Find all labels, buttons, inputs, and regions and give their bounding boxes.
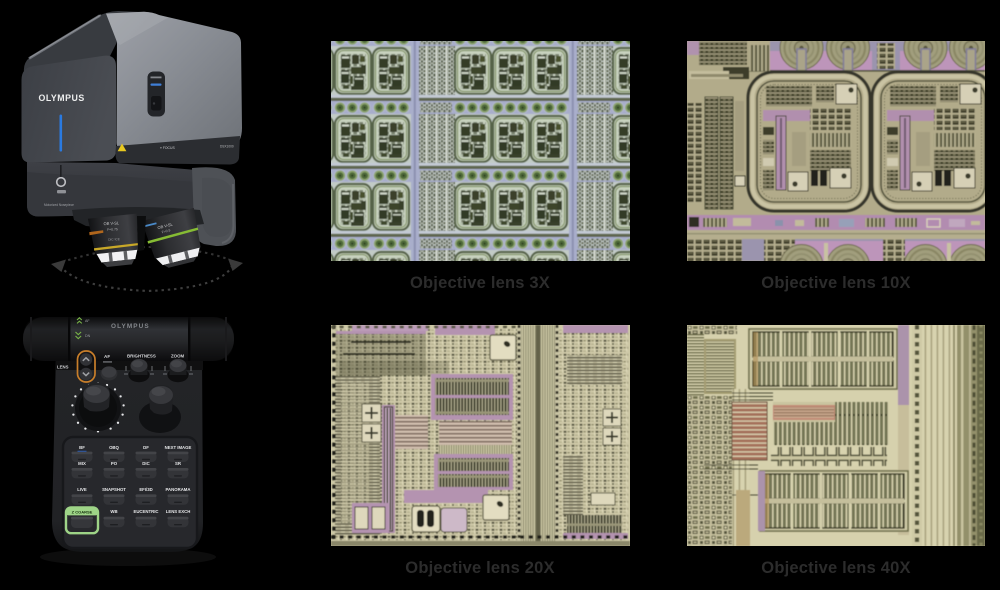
svg-text:DIC ICE: DIC ICE bbox=[108, 237, 120, 242]
svg-text:OBQ: OBQ bbox=[109, 445, 119, 450]
svg-text:EUCENTRIC: EUCENTRIC bbox=[133, 509, 158, 514]
svg-text:⌖ FOCUS: ⌖ FOCUS bbox=[160, 146, 175, 150]
svg-text:LENS EXCH: LENS EXCH bbox=[166, 509, 191, 514]
svg-text:DIC: DIC bbox=[142, 461, 149, 466]
svg-text:DSX1000: DSX1000 bbox=[220, 145, 234, 149]
svg-text:OLYMPUS: OLYMPUS bbox=[39, 93, 85, 103]
svg-text:SR: SR bbox=[175, 461, 182, 466]
svg-text:BF: BF bbox=[79, 445, 85, 450]
svg-text:Z COARSE: Z COARSE bbox=[72, 510, 93, 515]
svg-text:OLYMPUS: OLYMPUS bbox=[111, 323, 150, 330]
svg-text:DN: DN bbox=[85, 334, 91, 338]
svg-text:NEXT IMAGE: NEXT IMAGE bbox=[165, 445, 192, 450]
svg-text:PANORAMA: PANORAMA bbox=[166, 487, 191, 492]
svg-text:Motorized Nosepiece: Motorized Nosepiece bbox=[44, 203, 74, 207]
svg-text:LENS: LENS bbox=[57, 365, 69, 370]
svg-text:WB: WB bbox=[110, 509, 117, 514]
svg-text:OB V-SL: OB V-SL bbox=[103, 220, 120, 226]
svg-text:AF: AF bbox=[85, 319, 90, 323]
svg-text:LIVE: LIVE bbox=[77, 487, 87, 492]
svg-text:ZOOM: ZOOM bbox=[171, 354, 185, 359]
svg-text:MIX: MIX bbox=[78, 461, 86, 466]
svg-text:AF: AF bbox=[104, 354, 110, 359]
svg-text:PO: PO bbox=[111, 461, 118, 466]
svg-text:F=0.75: F=0.75 bbox=[107, 227, 118, 232]
svg-text:EFI/3D: EFI/3D bbox=[139, 487, 152, 492]
svg-text:SNAPSHOT: SNAPSHOT bbox=[102, 487, 126, 492]
svg-text:DF: DF bbox=[143, 445, 149, 450]
svg-text:BRIGHTNESS: BRIGHTNESS bbox=[127, 354, 156, 359]
